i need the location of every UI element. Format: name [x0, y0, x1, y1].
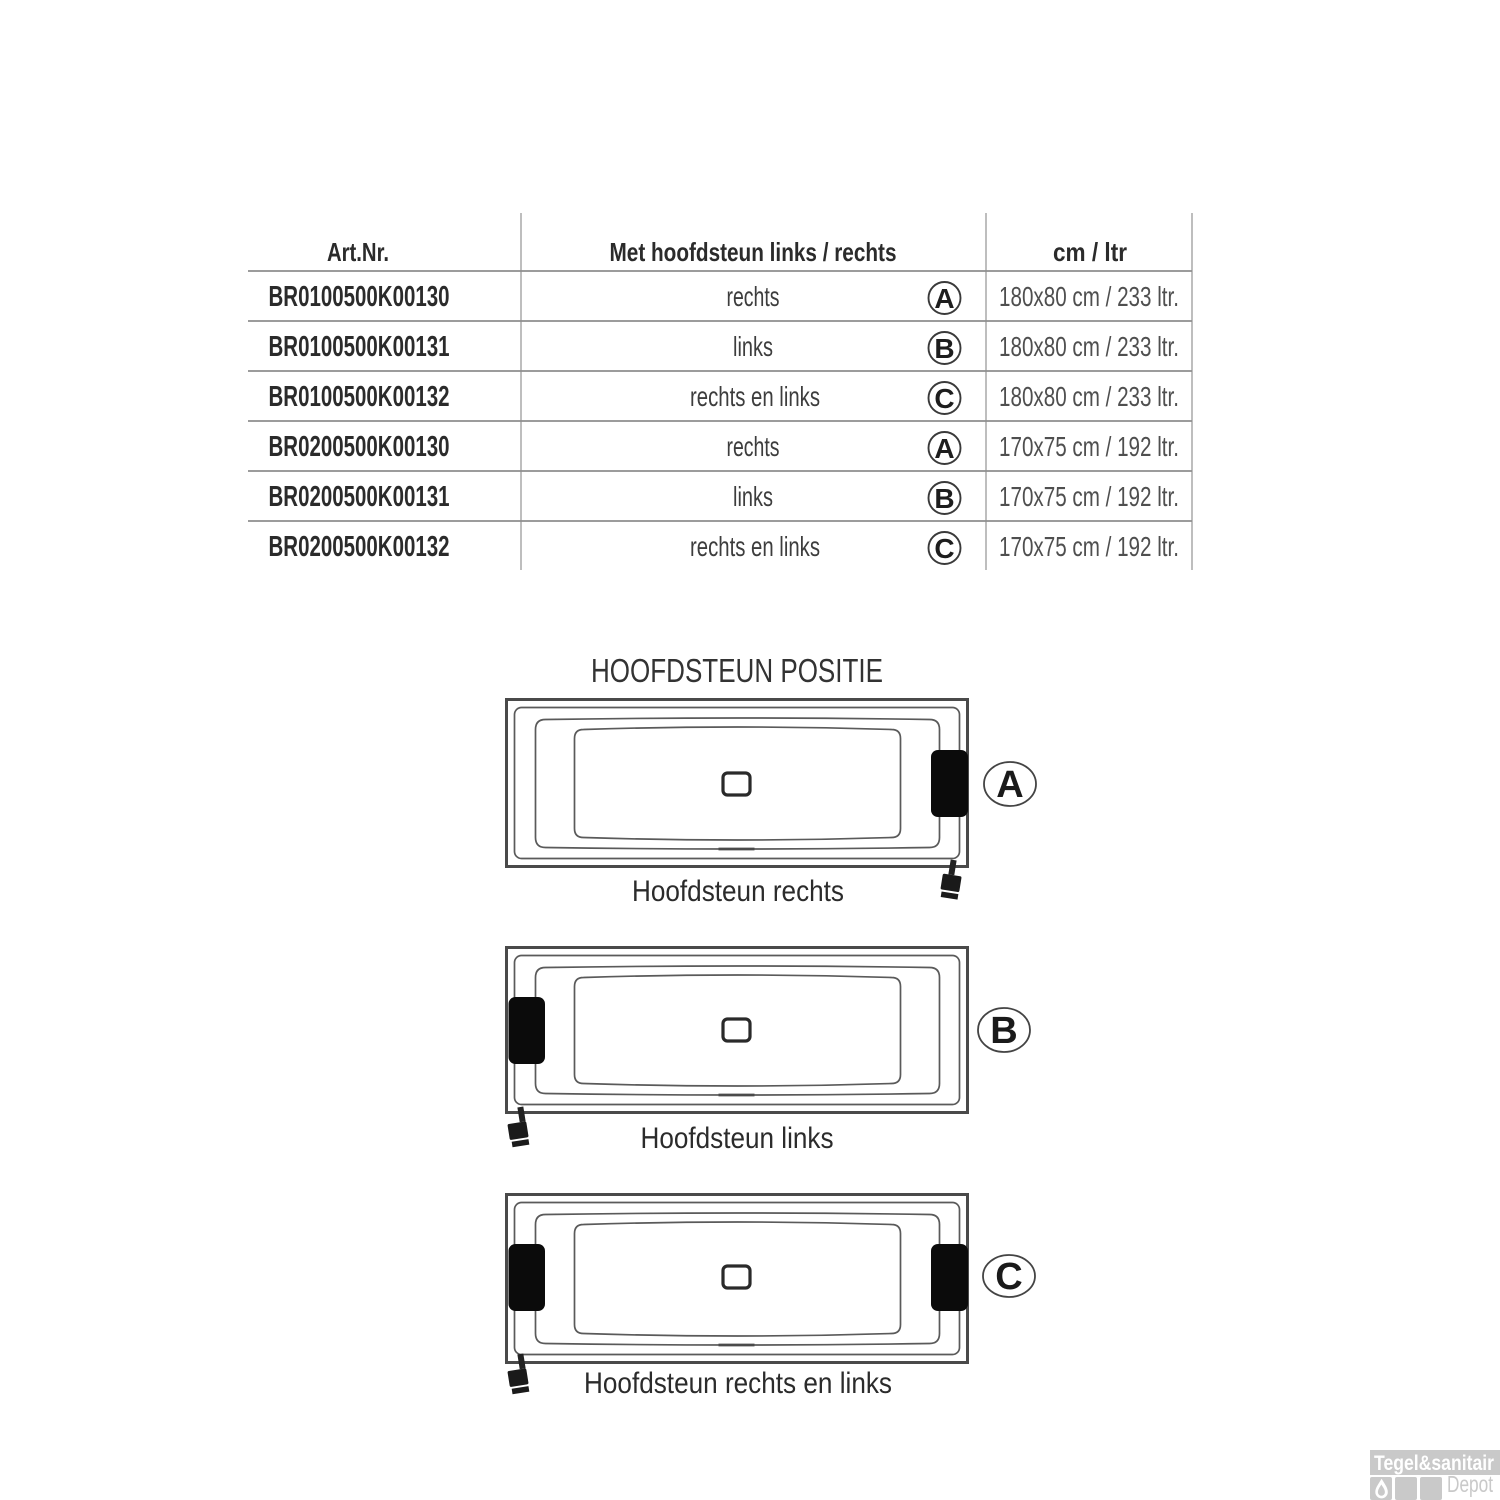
svg-text:Art.Nr.: Art.Nr. — [327, 237, 389, 267]
svg-text:B: B — [934, 333, 954, 364]
svg-text:BR0100500K00131: BR0100500K00131 — [269, 331, 450, 363]
svg-text:links: links — [733, 481, 773, 512]
svg-text:Hoofdsteun links: Hoofdsteun links — [641, 1122, 834, 1155]
svg-text:180x80 cm / 233 ltr.: 180x80 cm / 233 ltr. — [999, 381, 1179, 412]
svg-text:B: B — [934, 483, 954, 514]
svg-text:A: A — [934, 283, 954, 314]
svg-text:A: A — [934, 433, 954, 464]
svg-text:rechts: rechts — [727, 431, 780, 462]
svg-text:BR0100500K00130: BR0100500K00130 — [269, 281, 450, 313]
svg-text:rechts en links: rechts en links — [690, 381, 820, 412]
svg-text:C: C — [934, 383, 954, 414]
svg-text:rechts en links: rechts en links — [690, 531, 820, 562]
svg-text:Met hoofdsteun links / rechts: Met hoofdsteun links / rechts — [610, 237, 897, 267]
svg-text:180x80 cm / 233 ltr.: 180x80 cm / 233 ltr. — [999, 281, 1179, 312]
svg-text:links: links — [733, 331, 773, 362]
svg-text:170x75 cm / 192 ltr.: 170x75 cm / 192 ltr. — [999, 431, 1179, 462]
svg-text:HOOFDSTEUN POSITIE: HOOFDSTEUN POSITIE — [591, 652, 883, 689]
svg-text:cm / ltr: cm / ltr — [1053, 237, 1127, 267]
svg-text:170x75 cm / 192 ltr.: 170x75 cm / 192 ltr. — [999, 531, 1179, 562]
svg-text:180x80 cm / 233 ltr.: 180x80 cm / 233 ltr. — [999, 331, 1179, 362]
svg-text:170x75 cm / 192 ltr.: 170x75 cm / 192 ltr. — [999, 481, 1179, 512]
svg-text:C: C — [934, 533, 954, 564]
svg-text:BR0100500K00132: BR0100500K00132 — [269, 381, 450, 413]
svg-text:Depot: Depot — [1447, 1471, 1493, 1497]
svg-text:BR0200500K00132: BR0200500K00132 — [269, 531, 450, 563]
svg-text:Hoofdsteun rechts: Hoofdsteun rechts — [632, 875, 844, 908]
svg-text:A: A — [996, 764, 1023, 806]
svg-text:Hoofdsteun rechts en links: Hoofdsteun rechts en links — [584, 1367, 892, 1400]
svg-text:B: B — [990, 1010, 1017, 1052]
svg-text:BR0200500K00131: BR0200500K00131 — [269, 481, 450, 513]
svg-text:BR0200500K00130: BR0200500K00130 — [269, 431, 450, 463]
svg-text:rechts: rechts — [727, 281, 780, 312]
svg-text:C: C — [995, 1256, 1022, 1298]
